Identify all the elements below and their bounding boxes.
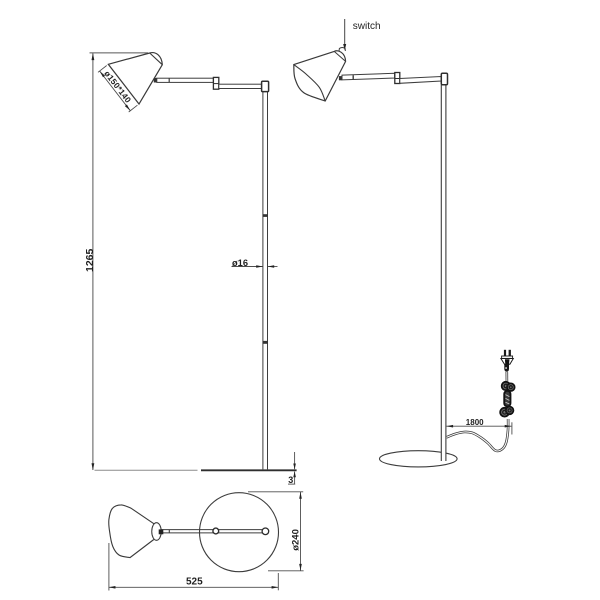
svg-text:switch: switch	[353, 21, 381, 32]
svg-text:3: 3	[288, 475, 293, 485]
svg-text:1265: 1265	[84, 248, 96, 272]
svg-text:1800: 1800	[466, 418, 484, 427]
svg-text:ø240: ø240	[290, 529, 301, 551]
svg-text:ø16: ø16	[232, 258, 248, 268]
svg-text:525: 525	[186, 577, 203, 588]
